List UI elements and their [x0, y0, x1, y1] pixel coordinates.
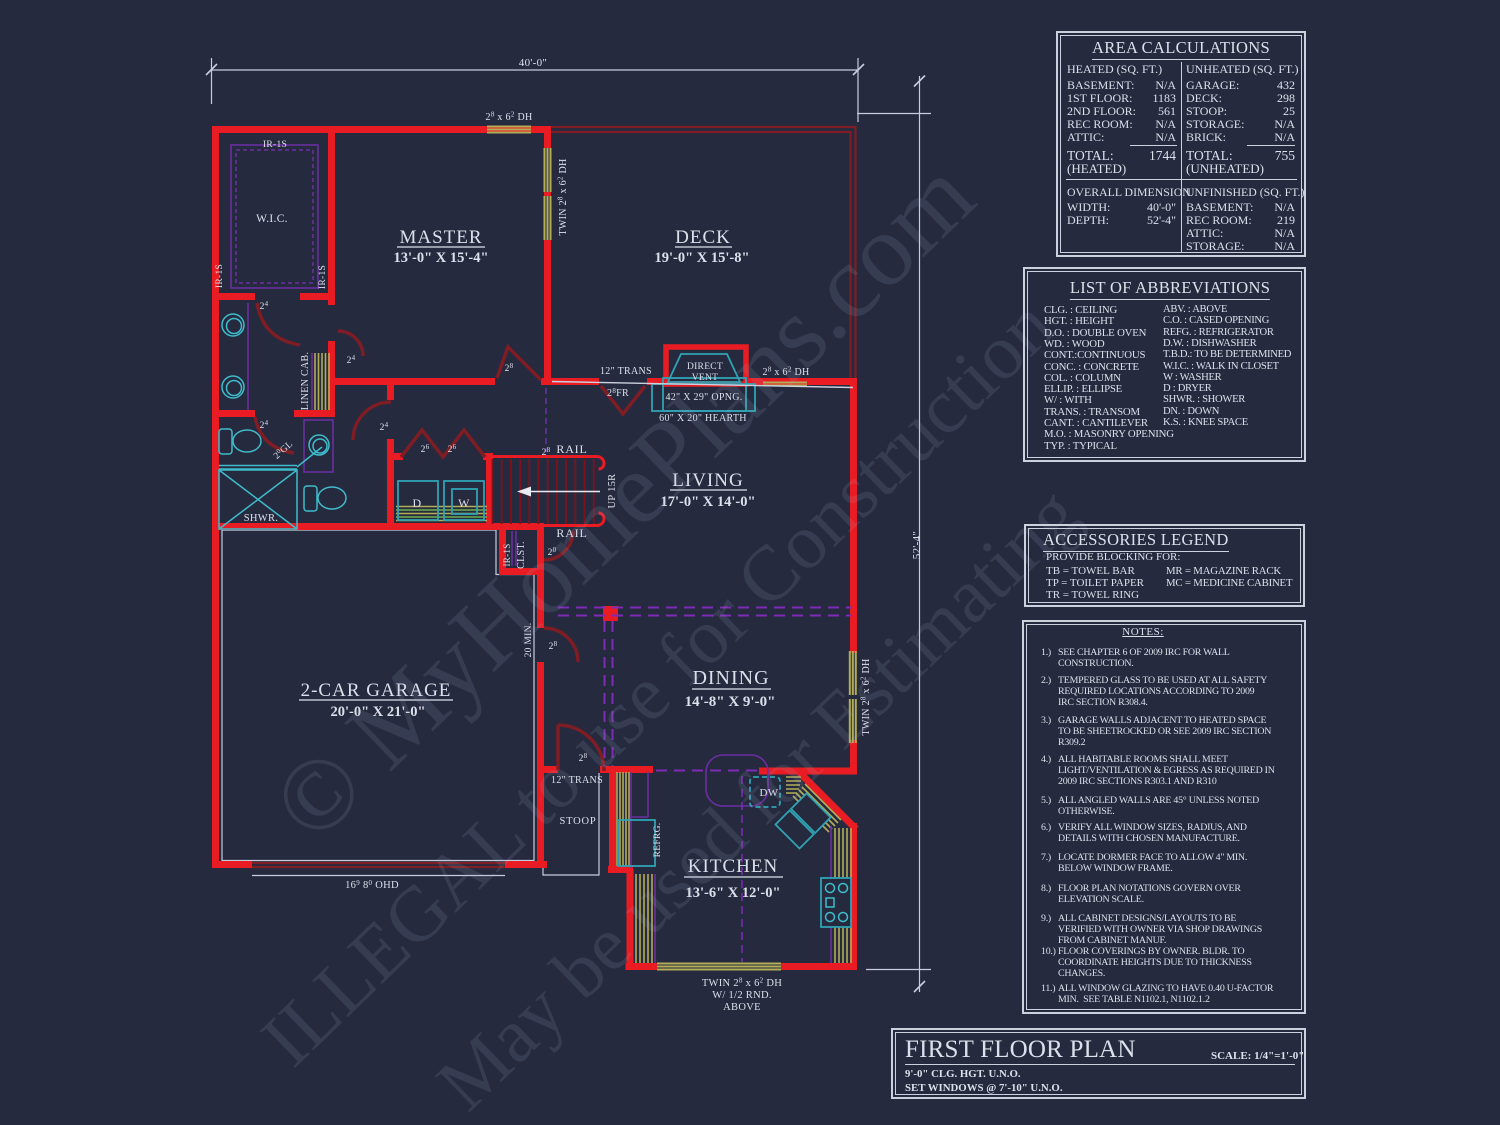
svg-text:24: 24: [380, 421, 389, 433]
svg-text:IR-1S: IR-1S: [318, 265, 328, 289]
svg-text:SHWR.: SHWR.: [244, 513, 278, 524]
svg-text:W/ 1/2 RND.: W/ 1/2 RND.: [712, 990, 772, 1001]
svg-text:IR-1S: IR-1S: [215, 264, 225, 288]
svg-text:24: 24: [260, 300, 269, 312]
svg-text:20GL: 20GL: [272, 439, 296, 462]
svg-text:28 x 62 DH: 28 x 62 DH: [486, 111, 533, 124]
svg-text:52'-4": 52'-4": [911, 531, 923, 559]
svg-text:W.I.C.: W.I.C.: [256, 213, 288, 225]
svg-text:W: W: [458, 496, 470, 510]
svg-text:40'-0": 40'-0": [519, 57, 547, 69]
svg-text:DECK: DECK: [675, 227, 731, 248]
svg-text:IR-1S: IR-1S: [263, 140, 287, 150]
svg-text:13'-0" X 15'-4": 13'-0" X 15'-4": [393, 250, 488, 266]
svg-text:12" TRANS: 12" TRANS: [600, 366, 652, 377]
svg-text:19'-0" X 15'-8": 19'-0" X 15'-8": [654, 250, 749, 266]
svg-text:TWIN 28 x 62 DH: TWIN 28 x 62 DH: [702, 977, 782, 990]
svg-text:28: 28: [505, 362, 514, 374]
svg-text:26: 26: [448, 443, 457, 455]
svg-text:MASTER: MASTER: [399, 227, 482, 248]
svg-text:24: 24: [347, 354, 356, 366]
svg-text:RAIL: RAIL: [556, 442, 587, 456]
svg-text:ABOVE: ABOVE: [723, 1002, 761, 1013]
svg-text:28FR: 28FR: [607, 387, 629, 399]
svg-text:LINEN CAB.: LINEN CAB.: [300, 352, 311, 411]
svg-text:26: 26: [421, 443, 430, 455]
svg-text:24: 24: [260, 419, 269, 431]
svg-text:TWIN 28 x 62 DH: TWIN 28 x 62 DH: [557, 158, 570, 235]
svg-text:D: D: [413, 496, 422, 510]
